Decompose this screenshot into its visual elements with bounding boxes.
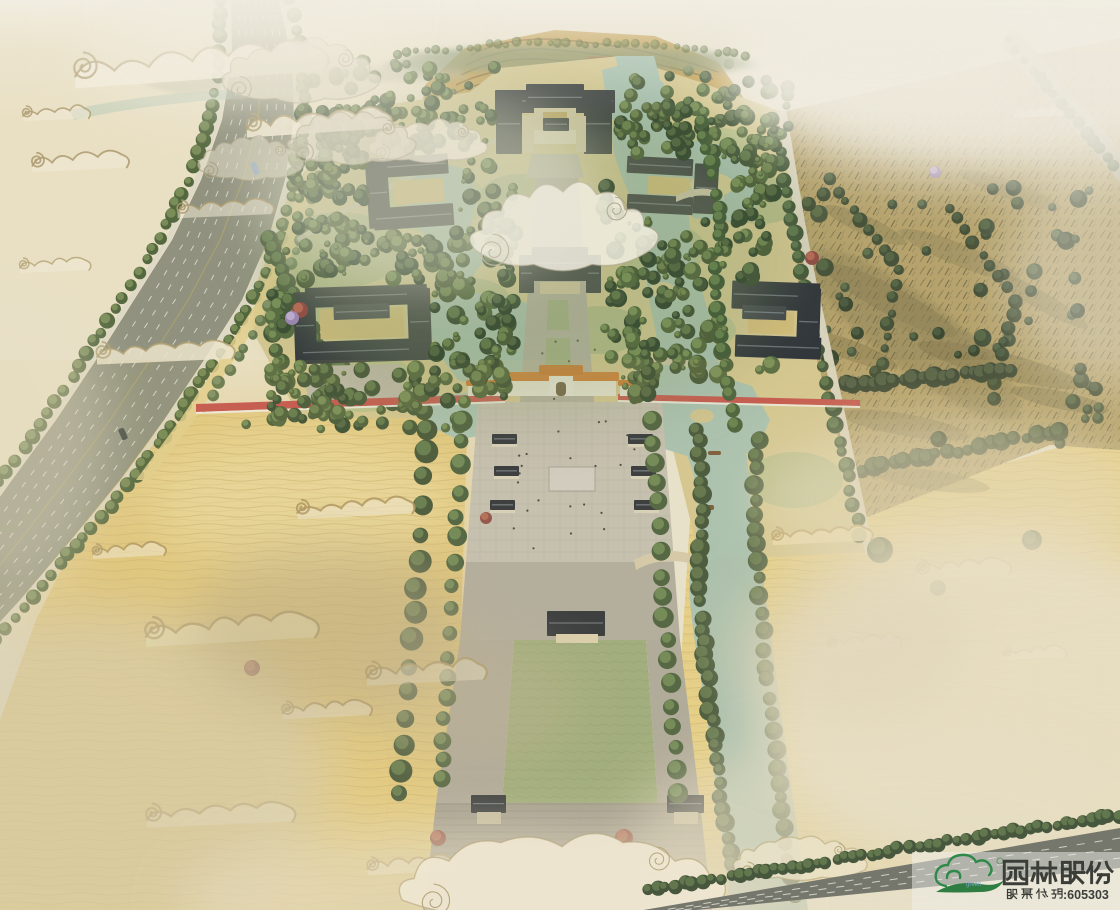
svg-text::605303: :605303 xyxy=(1063,888,1109,902)
svg-text:green: green xyxy=(966,882,981,888)
